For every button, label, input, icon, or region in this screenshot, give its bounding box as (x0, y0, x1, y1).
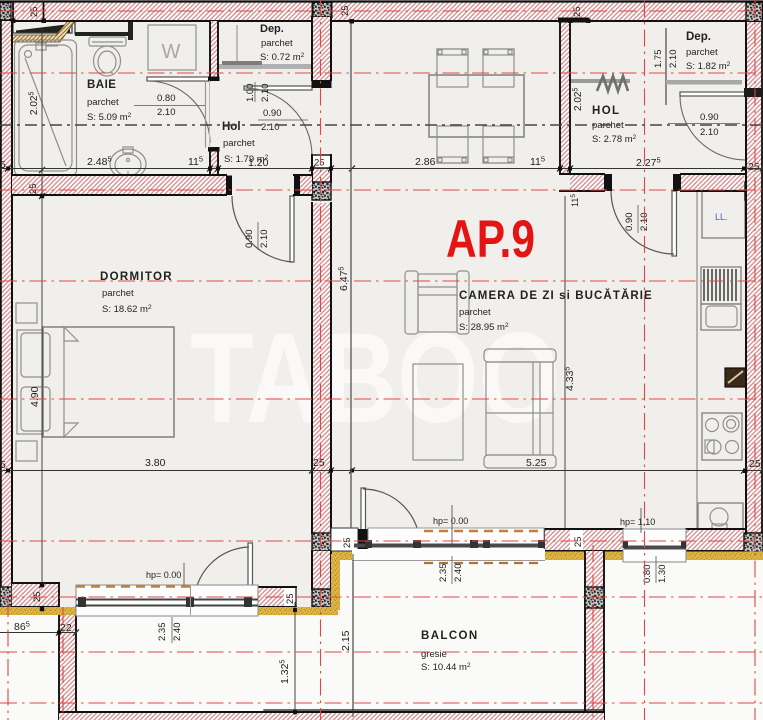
svg-text:2.10: 2.10 (157, 107, 176, 118)
svg-text:2.35: 2.35 (157, 623, 168, 642)
svg-text:0.90: 0.90 (244, 230, 255, 249)
svg-text:S: 28.95 m2: S: 28.95 m2 (459, 322, 509, 333)
svg-text:S: 0.72 m2: S: 0.72 m2 (260, 52, 305, 63)
svg-text:3.80: 3.80 (145, 457, 166, 469)
svg-text:parchet: parchet (223, 138, 255, 149)
svg-text:1.75: 1.75 (653, 50, 664, 69)
svg-text:0.90: 0.90 (263, 108, 282, 119)
svg-text:25: 25 (572, 6, 583, 17)
svg-text:2.15: 2.15 (340, 630, 352, 651)
svg-text:2.10: 2.10 (261, 122, 280, 133)
svg-text:Hol: Hol (222, 121, 241, 133)
svg-text:25: 25 (573, 536, 584, 547)
svg-text:parchet: parchet (102, 288, 134, 299)
svg-text:0.90: 0.90 (624, 213, 635, 232)
svg-text:25: 25 (285, 593, 296, 604)
svg-text:gresie: gresie (421, 649, 447, 660)
svg-text:CAMERA DE ZI si BUCĂTĂRIE: CAMERA DE ZI si BUCĂTĂRIE (459, 289, 653, 302)
svg-text:AP.9: AP.9 (446, 210, 535, 269)
svg-text:5.25: 5.25 (526, 457, 547, 469)
svg-text:S: 18.62 m2: S: 18.62 m2 (102, 304, 152, 315)
svg-text:1.30: 1.30 (657, 565, 668, 584)
svg-text:Dep.: Dep. (686, 31, 711, 43)
svg-text:W: W (162, 41, 181, 63)
svg-text:4.90: 4.90 (29, 386, 41, 407)
svg-text:parchet: parchet (261, 38, 293, 49)
svg-text:2.40: 2.40 (453, 564, 464, 583)
svg-text:25: 25 (29, 6, 40, 17)
svg-text:parchet: parchet (459, 307, 491, 318)
svg-text:parchet: parchet (87, 97, 119, 108)
svg-text:2.10: 2.10 (259, 230, 270, 249)
svg-text:25: 25 (28, 183, 39, 194)
svg-text:0.80: 0.80 (157, 93, 176, 104)
svg-text:25: 25 (748, 161, 760, 173)
svg-text:S: 1.79 m2: S: 1.79 m2 (224, 154, 269, 165)
svg-text:22: 22 (60, 622, 72, 634)
svg-text:hp= 1.10: hp= 1.10 (620, 517, 655, 527)
svg-text:BALCON: BALCON (421, 630, 479, 642)
svg-text:hp= 0.00: hp= 0.00 (146, 570, 181, 580)
svg-text:2.10: 2.10 (700, 127, 719, 138)
svg-text:parchet: parchet (686, 47, 718, 58)
svg-text:hp= 0.00: hp= 0.00 (433, 516, 468, 526)
svg-text:1.00: 1.00 (245, 84, 256, 103)
svg-text:25: 25 (749, 458, 761, 470)
svg-text:25: 25 (314, 158, 325, 169)
svg-text:Dep.: Dep. (260, 23, 284, 35)
svg-text:BAIE: BAIE (87, 79, 116, 91)
svg-text:S: 1.82 m2: S: 1.82 m2 (686, 61, 731, 72)
svg-text:HOL: HOL (592, 105, 620, 117)
svg-text:S: 10.44 m2: S: 10.44 m2 (421, 662, 471, 673)
svg-text:S: 2.78 m2: S: 2.78 m2 (592, 134, 637, 145)
svg-text:25: 25 (342, 537, 353, 548)
svg-text:2.10: 2.10 (668, 50, 679, 69)
svg-text:2.10: 2.10 (260, 84, 271, 103)
svg-text:25: 25 (340, 5, 351, 16)
svg-text:LL.: LL. (715, 212, 728, 222)
svg-text:25: 25 (313, 457, 325, 469)
svg-text:S: 5.09 m2: S: 5.09 m2 (87, 112, 132, 123)
svg-text:2.40: 2.40 (172, 623, 183, 642)
svg-text:0.90: 0.90 (700, 112, 719, 123)
svg-text:5: 5 (0, 159, 6, 171)
svg-text:2.35: 2.35 (438, 564, 449, 583)
svg-text:5: 5 (0, 459, 6, 471)
svg-text:2.86: 2.86 (415, 156, 436, 168)
svg-text:0.80: 0.80 (642, 565, 653, 584)
